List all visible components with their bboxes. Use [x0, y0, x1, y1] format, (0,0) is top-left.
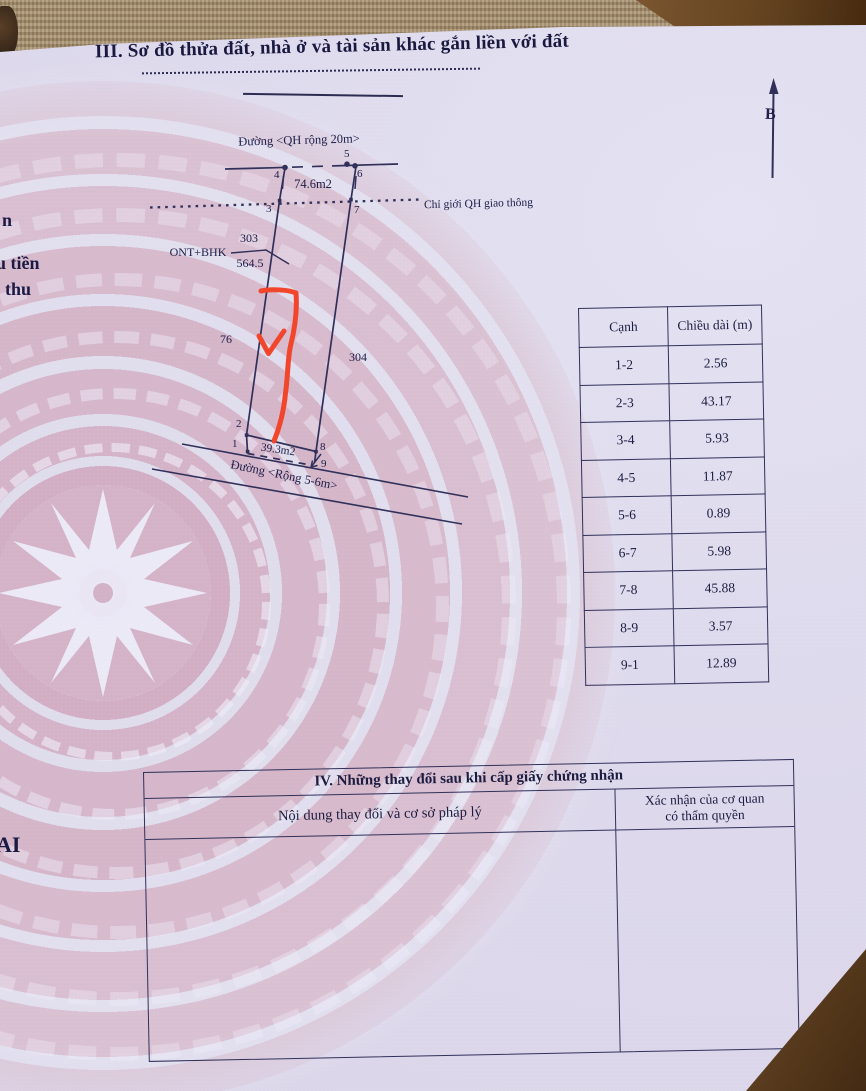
north-label: B	[765, 106, 776, 124]
neighbor-plot-right: 304	[349, 350, 367, 365]
table-row: 4-511.87	[581, 456, 765, 497]
vertex-label-5: 5	[344, 148, 350, 160]
plot-number: 303	[240, 231, 258, 246]
finger-tip	[0, 6, 18, 58]
area-top-label: 74.6m2	[294, 177, 332, 192]
section4-empty-row	[145, 827, 798, 1061]
land-use-code: ONT+BHK	[170, 245, 227, 260]
planning-boundary-label: Chỉ giới QH giao thông	[424, 197, 533, 211]
vertex-label-4: 4	[274, 169, 280, 181]
table-row: 6-75.98	[583, 531, 767, 572]
margin-fragment: thu	[5, 279, 31, 300]
margin-fragment: AI	[0, 832, 20, 858]
vertex-label-1: 1	[232, 438, 238, 450]
photo-background: III. Sơ đồ thửa đất, nhà ở và tài sản kh…	[0, 0, 866, 1091]
plot-area: 564.5	[237, 256, 264, 271]
col-header-edge: Cạnh	[579, 307, 669, 348]
neighbor-plot-left: 76	[220, 332, 232, 347]
table-row: 5-60.89	[582, 494, 766, 535]
vertex-label-6: 6	[357, 168, 363, 180]
section4-col2-header: Xác nhận của cơ quan có thẩm quyền	[615, 786, 794, 830]
section4-table: IV. Những thay đổi sau khi cấp giấy chứn…	[143, 759, 800, 1062]
vertex-label-2: 2	[236, 418, 242, 430]
table-header-row: Cạnh Chiều dài (m)	[579, 305, 763, 348]
vertex-label-9: 9	[321, 458, 327, 470]
col-header-length: Chiều dài (m)	[667, 305, 762, 346]
vertex-label-8: 8	[320, 441, 326, 453]
table-row: 1-22.56	[579, 344, 763, 385]
road-top-label: Đường <QH rộng 20m>	[238, 131, 360, 149]
margin-fragment: u tiền	[0, 253, 40, 274]
table-row: 2-343.17	[580, 381, 764, 422]
vertex-label-7: 7	[354, 204, 360, 216]
table-row: 8-93.57	[584, 606, 768, 647]
margin-fragment: n	[2, 210, 12, 231]
vertex-label-3: 3	[266, 203, 272, 215]
table-row: 7-845.88	[584, 569, 768, 610]
edge-length-table: Cạnh Chiều dài (m) 1-22.56 2-343.17 3-45…	[578, 304, 769, 685]
table-row: 9-112.89	[585, 644, 769, 685]
table-row: 3-45.93	[581, 419, 765, 460]
